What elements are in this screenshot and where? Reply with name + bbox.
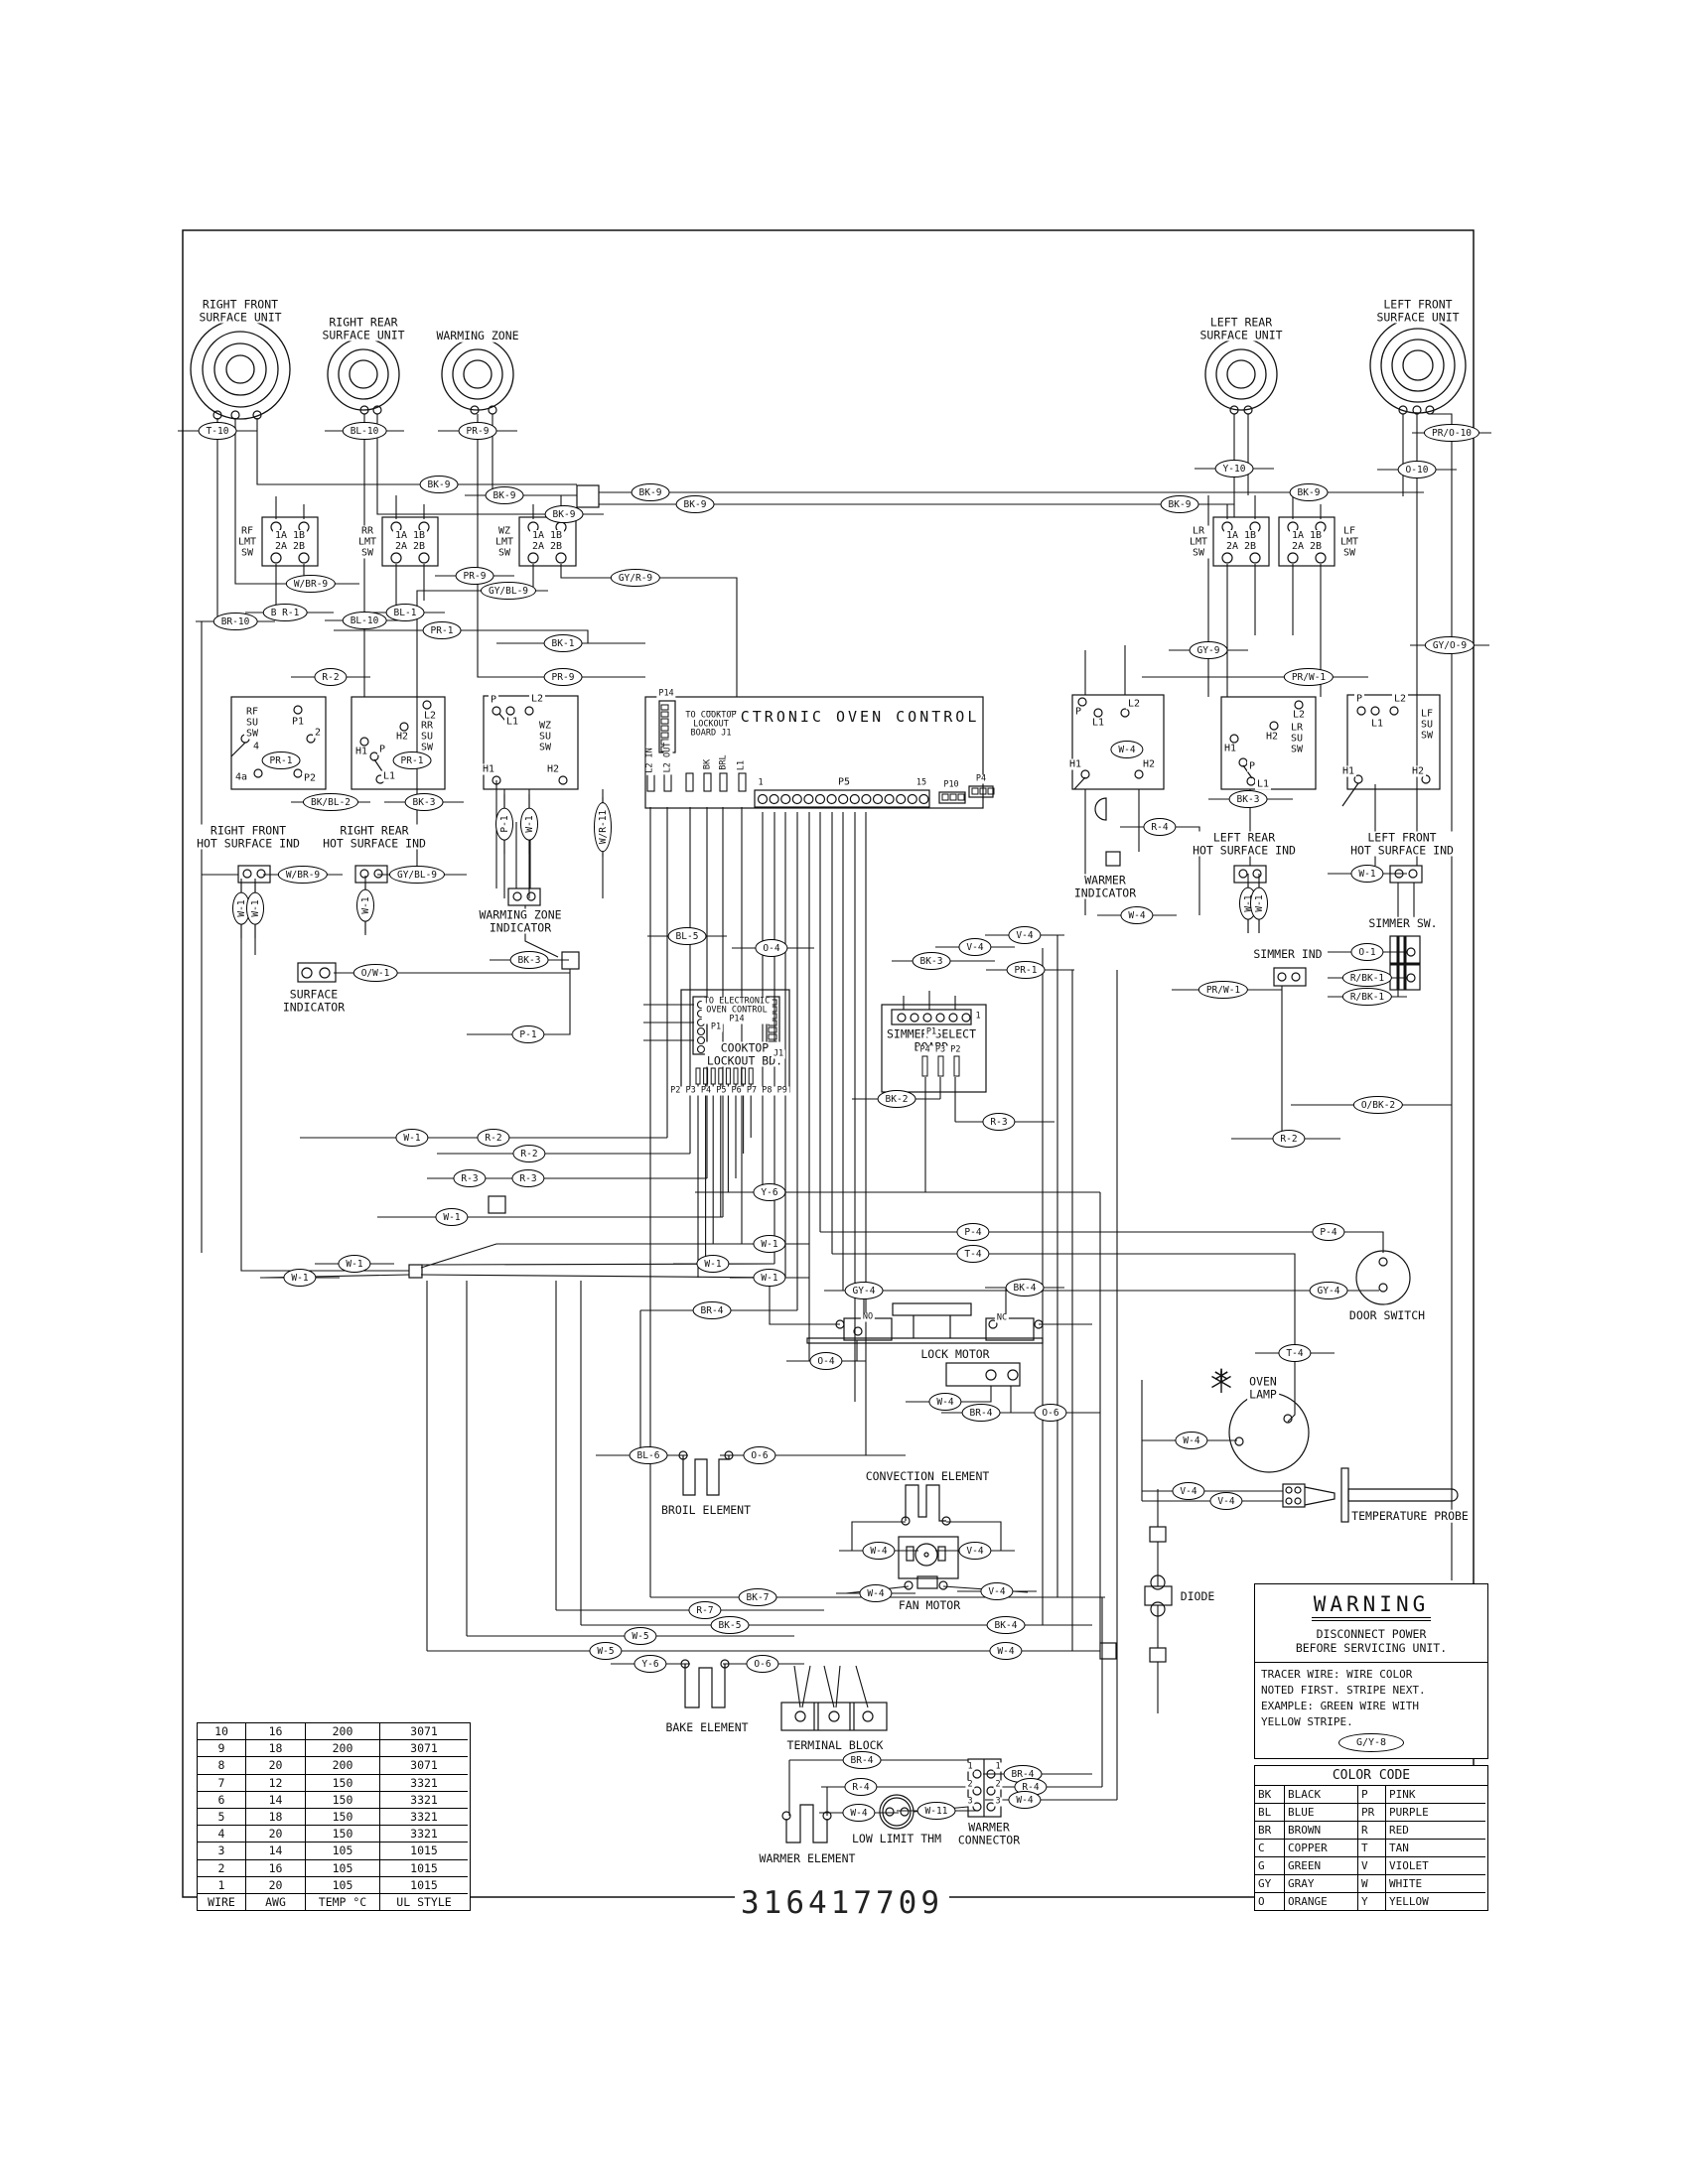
wire-table-cell: 3071	[380, 1740, 468, 1757]
wire-table-cell: 20	[246, 1826, 306, 1843]
wire-table-cell: 10	[198, 1723, 246, 1740]
wire-table-cell: 3321	[380, 1826, 468, 1843]
wire-table-row: 3141051015	[198, 1843, 470, 1859]
wire-table-cell: 200	[306, 1740, 380, 1757]
wire-table-cell: 14	[246, 1843, 306, 1859]
warning-line2: BEFORE SERVICING UNIT.	[1255, 1641, 1487, 1655]
color-code-cell: COPPER	[1285, 1840, 1358, 1857]
color-code-cell: PURPLE	[1386, 1804, 1485, 1822]
wire-table-cell: 1015	[380, 1877, 468, 1894]
wire-table-cell: 1	[198, 1877, 246, 1894]
wire-table-cell: 105	[306, 1860, 380, 1877]
wire-table-cell: 16	[246, 1723, 306, 1740]
color-code-cell: T	[1358, 1840, 1386, 1857]
wire-table-cell: 105	[306, 1877, 380, 1894]
wire-table-row: 2161051015	[198, 1860, 470, 1877]
wire-table-cell: 150	[306, 1775, 380, 1792]
wire-table-row: 4201503321	[198, 1826, 470, 1843]
warning-box: WARNING DISCONNECT POWER BEFORE SERVICIN…	[1254, 1583, 1488, 1759]
wire-table-cell: 3071	[380, 1723, 468, 1740]
wire-table-cell: 1015	[380, 1843, 468, 1859]
wire-table-cell: 3321	[380, 1809, 468, 1826]
color-code-cell: Y	[1358, 1893, 1386, 1910]
color-code-cell: W	[1358, 1875, 1386, 1893]
wire-table-cell: 3321	[380, 1775, 468, 1792]
color-code-table: COLOR CODE BKBLACKPPINKBLBLUEPRPURPLEBRB…	[1254, 1765, 1488, 1911]
wire-table-cell: 16	[246, 1860, 306, 1877]
color-code-cell: TAN	[1386, 1840, 1485, 1857]
color-code-cell: YELLOW	[1386, 1893, 1485, 1910]
color-code-cell: WHITE	[1386, 1875, 1485, 1893]
color-code-cell: BR	[1255, 1822, 1285, 1840]
wire-table-cell: WIRE	[198, 1894, 246, 1910]
color-code-cell: ORANGE	[1285, 1893, 1358, 1910]
wire-table-cell: 14	[246, 1792, 306, 1809]
wire-table-cell: 2	[198, 1860, 246, 1877]
color-code-cell: BL	[1255, 1804, 1285, 1822]
wire-table-row: 6141503321	[198, 1792, 470, 1809]
wire-table-cell: 3071	[380, 1757, 468, 1774]
color-code-cell: GREEN	[1285, 1857, 1358, 1875]
wire-table-row: 10162003071	[198, 1723, 470, 1740]
schematic-page: RIGHT FRONT SURFACE UNITRIGHT REAR SURFA…	[0, 0, 1688, 2184]
wire-table-row: 9182003071	[198, 1740, 470, 1757]
wire-table-cell: 150	[306, 1826, 380, 1843]
color-code-cell: GRAY	[1285, 1875, 1358, 1893]
wire-table-cell: 105	[306, 1843, 380, 1859]
wire-gauge-table: 1016200307191820030718202003071712150332…	[197, 1722, 471, 1911]
warning-tracer-note: TRACER WIRE: WIRE COLOR NOTED FIRST. STR…	[1255, 1663, 1487, 1730]
wire-table-cell: 18	[246, 1809, 306, 1826]
warning-underline	[1312, 1617, 1431, 1618]
wire-table-cell: 3321	[380, 1792, 468, 1809]
color-code-grid: BKBLACKPPINKBLBLUEPRPURPLEBRBROWNRREDCCO…	[1255, 1786, 1487, 1910]
wire-table-cell: 150	[306, 1792, 380, 1809]
color-code-cell: C	[1255, 1840, 1285, 1857]
wire-table-cell: 4	[198, 1826, 246, 1843]
wire-table-cell: 20	[246, 1757, 306, 1774]
color-code-cell: VIOLET	[1386, 1857, 1485, 1875]
wire-table-cell: 7	[198, 1775, 246, 1792]
wire-table-cell: TEMP °C	[306, 1894, 380, 1910]
wire-table-row: 1201051015	[198, 1877, 470, 1894]
wire-table-cell: 200	[306, 1757, 380, 1774]
color-code-cell: P	[1358, 1786, 1386, 1804]
color-code-cell: O	[1255, 1893, 1285, 1910]
color-code-cell: PINK	[1386, 1786, 1485, 1804]
warning-line1: DISCONNECT POWER	[1255, 1627, 1487, 1641]
color-code-cell: GY	[1255, 1875, 1285, 1893]
warning-title: WARNING	[1255, 1592, 1487, 1616]
color-code-cell: BROWN	[1285, 1822, 1358, 1840]
color-code-cell: BLACK	[1285, 1786, 1358, 1804]
wire-table-cell: 8	[198, 1757, 246, 1774]
wire-table-cell: AWG	[246, 1894, 306, 1910]
wire-table-cell: 12	[246, 1775, 306, 1792]
color-code-cell: BK	[1255, 1786, 1285, 1804]
wire-table-cell: 200	[306, 1723, 380, 1740]
wire-table-cell: 1015	[380, 1860, 468, 1877]
wire-table-row: 8202003071	[198, 1757, 470, 1774]
wire-table-row: 5181503321	[198, 1809, 470, 1826]
color-code-cell: R	[1358, 1822, 1386, 1840]
color-code-cell: BLUE	[1285, 1804, 1358, 1822]
color-code-title: COLOR CODE	[1255, 1766, 1487, 1786]
tracer-example-tag: G/Y-8	[1338, 1733, 1404, 1752]
color-code-cell: RED	[1386, 1822, 1485, 1840]
wire-table-cell: UL STYLE	[380, 1894, 468, 1910]
wire-table-cell: 3	[198, 1843, 246, 1859]
wire-table-cell: 6	[198, 1792, 246, 1809]
wire-table-cell: 9	[198, 1740, 246, 1757]
wire-table-cell: 20	[246, 1877, 306, 1894]
wire-table-row: WIREAWGTEMP °CUL STYLE	[198, 1894, 470, 1910]
warning-underline-2	[1312, 1620, 1431, 1621]
wire-table-cell: 5	[198, 1809, 246, 1826]
wire-table-row: 7121503321	[198, 1775, 470, 1792]
color-code-cell: PR	[1358, 1804, 1386, 1822]
wire-table-cell: 150	[306, 1809, 380, 1826]
part-number: 316417709	[735, 1885, 949, 1921]
color-code-cell: G	[1255, 1857, 1285, 1875]
wire-table-cell: 18	[246, 1740, 306, 1757]
color-code-cell: V	[1358, 1857, 1386, 1875]
